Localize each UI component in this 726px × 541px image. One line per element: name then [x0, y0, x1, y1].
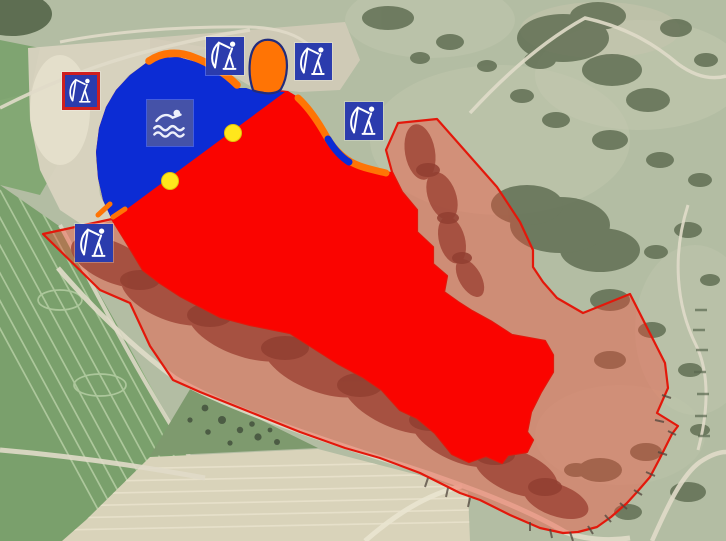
fishing-spot-icon-north-1[interactable]	[206, 37, 244, 75]
fishing-spot-icon-south[interactable]	[75, 224, 113, 262]
fishing-spot-icon-north-2[interactable]	[295, 43, 332, 80]
fishing-spot-icon-east[interactable]	[345, 102, 383, 140]
boundary-marker-south[interactable]	[161, 172, 179, 190]
swimming-area-icon[interactable]	[147, 100, 193, 146]
fishing-spot-icon-west[interactable]	[62, 72, 100, 110]
aerial-map	[0, 0, 726, 541]
overlay-layer	[0, 0, 726, 541]
boundary-marker-north[interactable]	[224, 124, 242, 142]
